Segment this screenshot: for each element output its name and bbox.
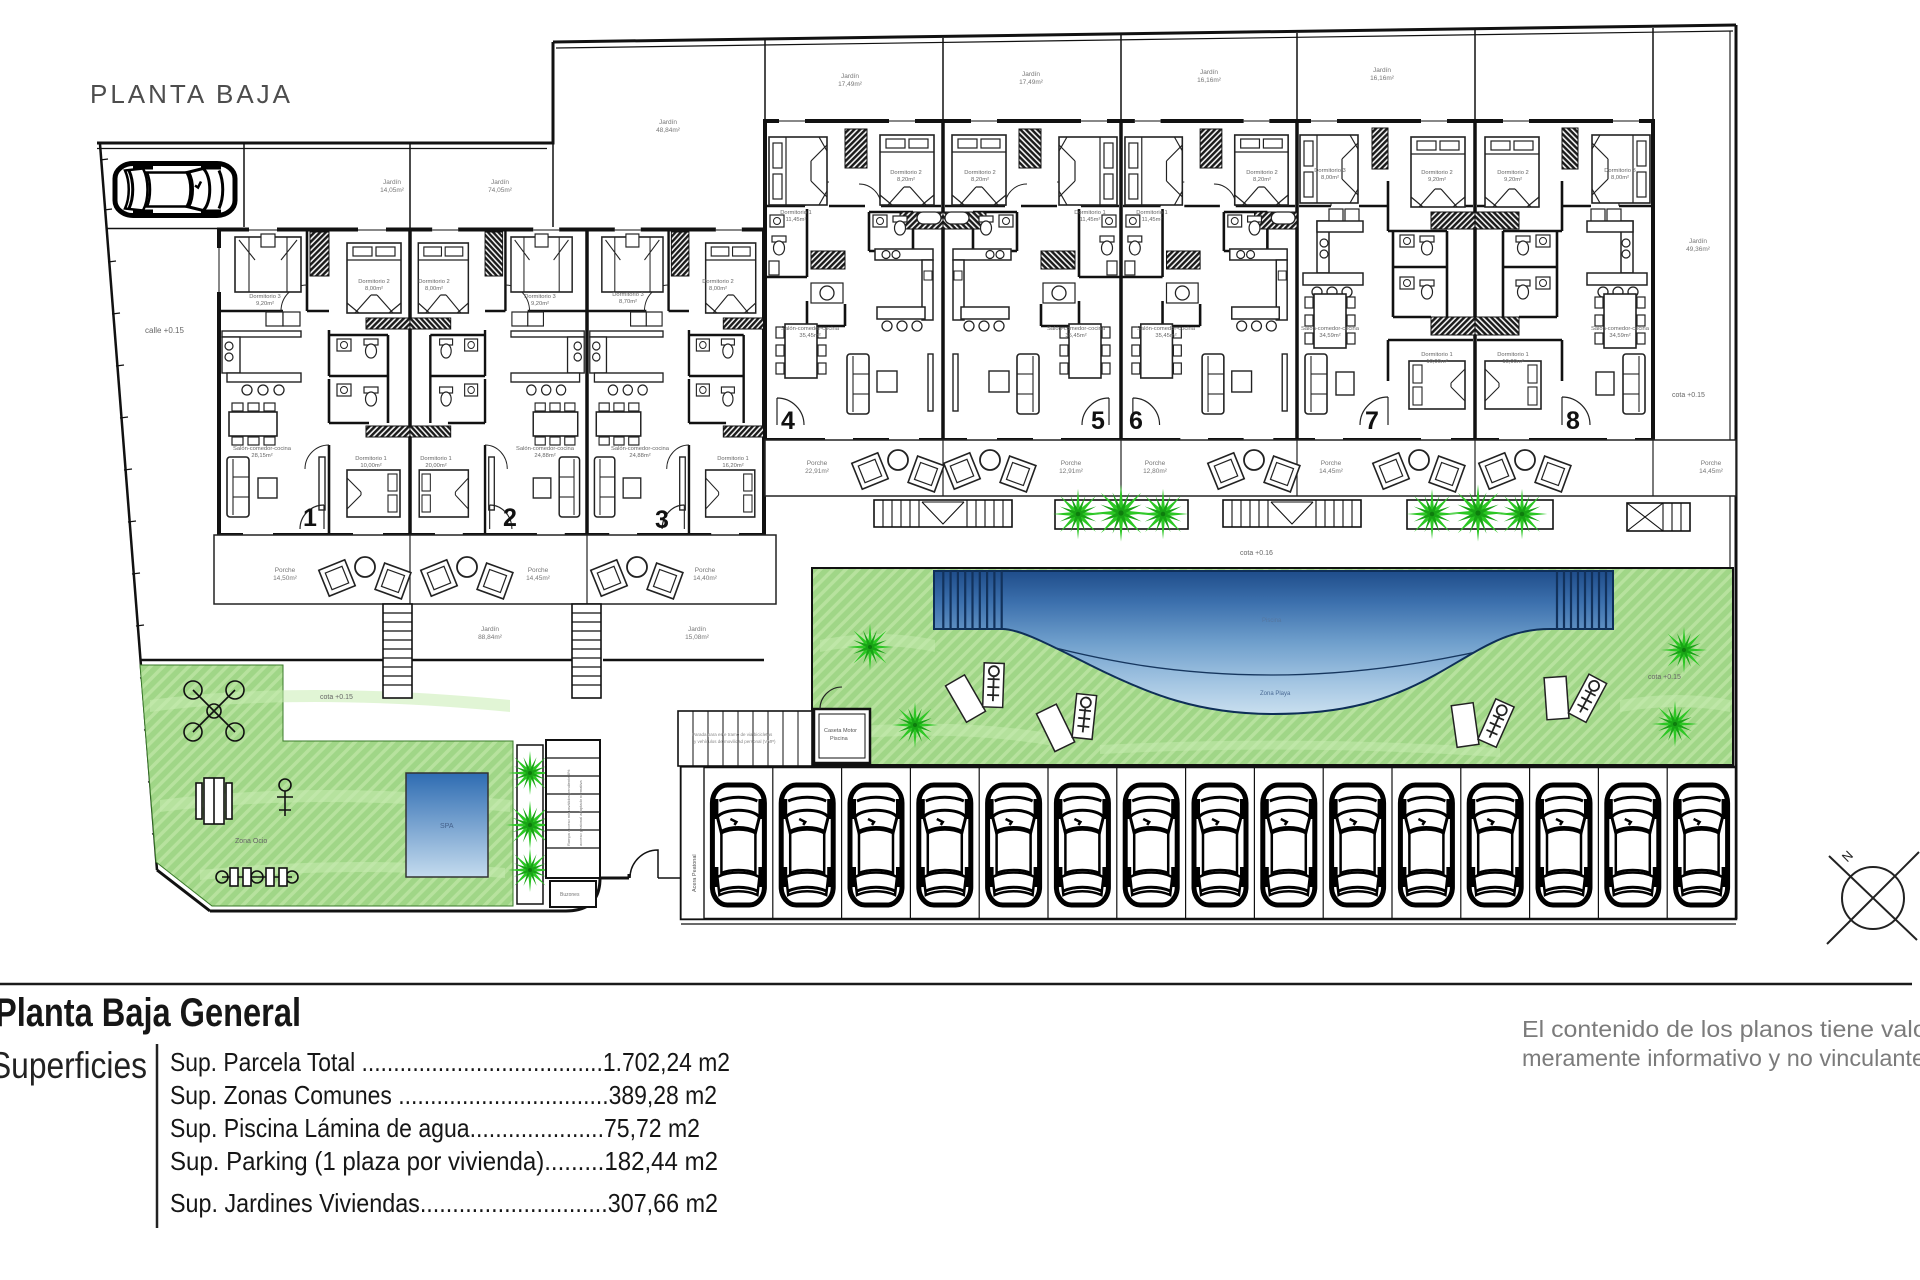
svg-text:Sup. Parcela Total ...........: Sup. Parcela Total .....................… [170,1047,730,1077]
svg-text:20,00m²: 20,00m² [425,463,446,469]
svg-text:15,08m²: 15,08m² [685,634,710,641]
svg-text:48,84m²: 48,84m² [656,127,681,134]
svg-text:6: 6 [1129,407,1143,435]
svg-text:11,45m²: 11,45m² [786,217,807,223]
svg-text:8,20m²: 8,20m² [1253,177,1271,183]
svg-text:8,00m²: 8,00m² [1611,175,1629,181]
svg-text:Superficies: Superficies [0,1045,147,1086]
svg-text:9,20m²: 9,20m² [1504,177,1522,183]
svg-text:9,20m²: 9,20m² [256,301,274,307]
svg-text:PLANTA BAJA: PLANTA BAJA [90,79,293,109]
svg-text:Jardín: Jardín [841,73,859,80]
svg-text:Dormitorio 1: Dormitorio 1 [1074,210,1106,216]
svg-text:Dormitorio 2: Dormitorio 2 [418,279,450,285]
svg-text:Dormitorio 1: Dormitorio 1 [1497,352,1529,358]
svg-text:Caseta Motor: Caseta Motor [824,728,857,734]
svg-text:8,00m²: 8,00m² [365,286,383,292]
svg-text:Dormitorio 2: Dormitorio 2 [1246,170,1278,176]
svg-text:16,16m²: 16,16m² [1370,75,1395,82]
svg-text:Salón-comedor-cocina: Salón-comedor-cocina [1591,326,1650,332]
svg-text:Parada para este tramo de via: Parada para este tramo de via bicicletas [692,732,773,737]
svg-text:Dormitorio 2: Dormitorio 2 [964,170,996,176]
svg-text:Salón-comedor-cocina: Salón-comedor-cocina [611,446,670,452]
svg-text:17,49m²: 17,49m² [838,81,863,88]
svg-text:Jardín: Jardín [1200,69,1218,76]
svg-text:Salón-comedor-cocina: Salón-comedor-cocina [1301,326,1360,332]
svg-text:Sup. Zonas Comunes ...........: Sup. Zonas Comunes .....................… [170,1080,717,1110]
svg-text:11,45m²: 11,45m² [1080,217,1101,223]
svg-text:SPA: SPA [440,823,454,830]
svg-text:Zona Ocio: Zona Ocio [235,838,267,845]
svg-text:35,45m²: 35,45m² [1155,333,1176,339]
svg-text:8,00m²: 8,00m² [1321,175,1339,181]
svg-text:cota +0.15: cota +0.15 [1648,674,1681,681]
svg-text:Porche: Porche [1061,460,1082,467]
svg-text:Porche: Porche [695,567,716,574]
svg-text:Planta Baja General: Planta Baja General [0,991,301,1035]
svg-text:Porche: Porche [1321,460,1342,467]
svg-text:8,20m²: 8,20m² [971,177,989,183]
svg-text:y vehículos de movilidad perso: y vehículos de movilidad personal (VMP) [694,739,776,744]
svg-text:12,91m²: 12,91m² [1059,468,1084,475]
svg-text:3: 3 [655,506,669,534]
svg-text:16,20m²: 16,20m² [722,463,743,469]
svg-text:Porche: Porche [275,567,296,574]
svg-text:Rampa acceso minusválidos pend: Rampa acceso minusválidos pendiente 8% [566,769,571,846]
svg-text:Dormitorio 3: Dormitorio 3 [524,294,556,300]
svg-text:14,45m²: 14,45m² [1699,468,1724,475]
svg-text:Sup. Parking (1 plaza por vivi: Sup. Parking (1 plaza por vivienda).....… [170,1146,718,1176]
svg-text:cota +0.15: cota +0.15 [320,694,353,701]
svg-text:Dormitorio 3: Dormitorio 3 [1604,168,1636,174]
svg-text:10,00m²: 10,00m² [1502,359,1523,365]
svg-text:74,05m²: 74,05m² [488,187,513,194]
svg-text:7: 7 [1365,407,1379,435]
svg-text:Dormitorio 2: Dormitorio 2 [358,279,390,285]
svg-text:28,15m²: 28,15m² [251,453,272,459]
svg-text:Acera Peatonal: Acera Peatonal [692,854,698,892]
svg-text:Salón-comedor-cocina: Salón-comedor-cocina [233,446,292,452]
svg-text:12,80m²: 12,80m² [1143,468,1168,475]
svg-text:Sup. Piscina Lámina de agua...: Sup. Piscina Lámina de agua.............… [170,1113,700,1143]
svg-text:Jardín: Jardín [1373,67,1391,74]
svg-text:Jardín: Jardín [383,179,401,186]
svg-text:Dormitorio 2: Dormitorio 2 [702,279,734,285]
svg-text:8,00m²: 8,00m² [709,286,727,292]
svg-text:Salón-comedor-cocina: Salón-comedor-cocina [781,326,840,332]
svg-text:88,84m²: 88,84m² [478,634,503,641]
svg-text:Dormitorio 2: Dormitorio 2 [1497,170,1529,176]
svg-text:Dormitorio 2: Dormitorio 2 [1421,170,1453,176]
svg-text:Dormitorio 2: Dormitorio 2 [890,170,922,176]
svg-text:1: 1 [303,504,317,532]
svg-text:Porche: Porche [1701,460,1722,467]
svg-text:16,16m²: 16,16m² [1197,77,1222,84]
svg-text:Salón-comedor-cocina: Salón-comedor-cocina [1137,326,1196,332]
svg-text:Dormitorio 3: Dormitorio 3 [612,292,644,298]
svg-text:Zona Playa: Zona Playa [1260,691,1291,697]
svg-text:35,45m²: 35,45m² [1065,333,1086,339]
svg-text:8,70m²: 8,70m² [619,299,637,305]
svg-text:24,88m²: 24,88m² [629,453,650,459]
svg-text:cota +0.15: cota +0.15 [1672,392,1705,399]
svg-text:49,36m²: 49,36m² [1686,246,1711,253]
svg-text:14,05m²: 14,05m² [380,187,405,194]
svg-text:10,00m²: 10,00m² [1426,359,1447,365]
svg-text:Jardín: Jardín [688,626,706,633]
svg-text:Dormitorio 1: Dormitorio 1 [1421,352,1453,358]
svg-text:Porche: Porche [807,460,828,467]
svg-text:calle +0.15: calle +0.15 [145,326,184,335]
svg-text:Salón-comedor-cocina: Salón-comedor-cocina [1047,326,1106,332]
svg-text:17,49m²: 17,49m² [1019,79,1044,86]
svg-text:35,45m²: 35,45m² [799,333,820,339]
svg-text:9,20m²: 9,20m² [1428,177,1446,183]
svg-text:Dormitorio 1: Dormitorio 1 [1136,210,1168,216]
svg-text:8,20m²: 8,20m² [897,177,915,183]
svg-text:Sup. Jardines Viviendas.......: Sup. Jardines Viviendas.................… [170,1188,718,1218]
svg-text:Porche: Porche [528,567,549,574]
svg-text:14,45m²: 14,45m² [526,575,551,582]
svg-text:2: 2 [503,504,517,532]
svg-text:Jardín: Jardín [491,179,509,186]
svg-text:Dormitorio 1: Dormitorio 1 [780,210,812,216]
svg-text:34,59m²: 34,59m² [1609,333,1630,339]
svg-text:8: 8 [1566,407,1580,435]
svg-text:34,59m²: 34,59m² [1319,333,1340,339]
svg-text:9,20m²: 9,20m² [531,301,549,307]
svg-text:El contenido de los planos tie: El contenido de los planos tiene valor [1522,1016,1920,1042]
svg-text:Dormitorio 1: Dormitorio 1 [717,456,749,462]
svg-text:14,45m²: 14,45m² [1319,468,1344,475]
svg-text:22,91m²: 22,91m² [805,468,830,475]
svg-text:5: 5 [1091,407,1105,435]
svg-text:Buzones: Buzones [560,892,580,898]
svg-text:cota +0.16: cota +0.16 [1240,550,1273,557]
svg-text:11,45m²: 11,45m² [1142,217,1163,223]
svg-text:Jardín: Jardín [481,626,499,633]
svg-text:Salón-comedor-cocina: Salón-comedor-cocina [516,446,575,452]
svg-text:Jardín: Jardín [1022,71,1040,78]
svg-text:Jardín: Jardín [1689,238,1707,245]
svg-text:acceso peatonal adaptado norma: acceso peatonal adaptado normativa [578,780,583,846]
svg-text:14,50m²: 14,50m² [273,575,298,582]
svg-text:14,40m²: 14,40m² [693,575,718,582]
svg-text:4: 4 [781,407,795,435]
svg-text:Dormitorio 1: Dormitorio 1 [355,456,387,462]
svg-text:8,00m²: 8,00m² [425,286,443,292]
svg-text:Piscina: Piscina [1262,618,1282,624]
svg-text:meramente informativo y no vin: meramente informativo y no vinculante [1522,1045,1920,1071]
svg-text:Piscina: Piscina [830,736,849,742]
svg-text:Jardín: Jardín [659,119,677,126]
svg-text:Dormitorio 3: Dormitorio 3 [1314,168,1346,174]
svg-text:24,88m²: 24,88m² [534,453,555,459]
svg-text:Porche: Porche [1145,460,1166,467]
svg-text:Dormitorio 3: Dormitorio 3 [249,294,281,300]
svg-text:Dormitorio 1: Dormitorio 1 [420,456,452,462]
svg-text:10,00m²: 10,00m² [360,463,381,469]
